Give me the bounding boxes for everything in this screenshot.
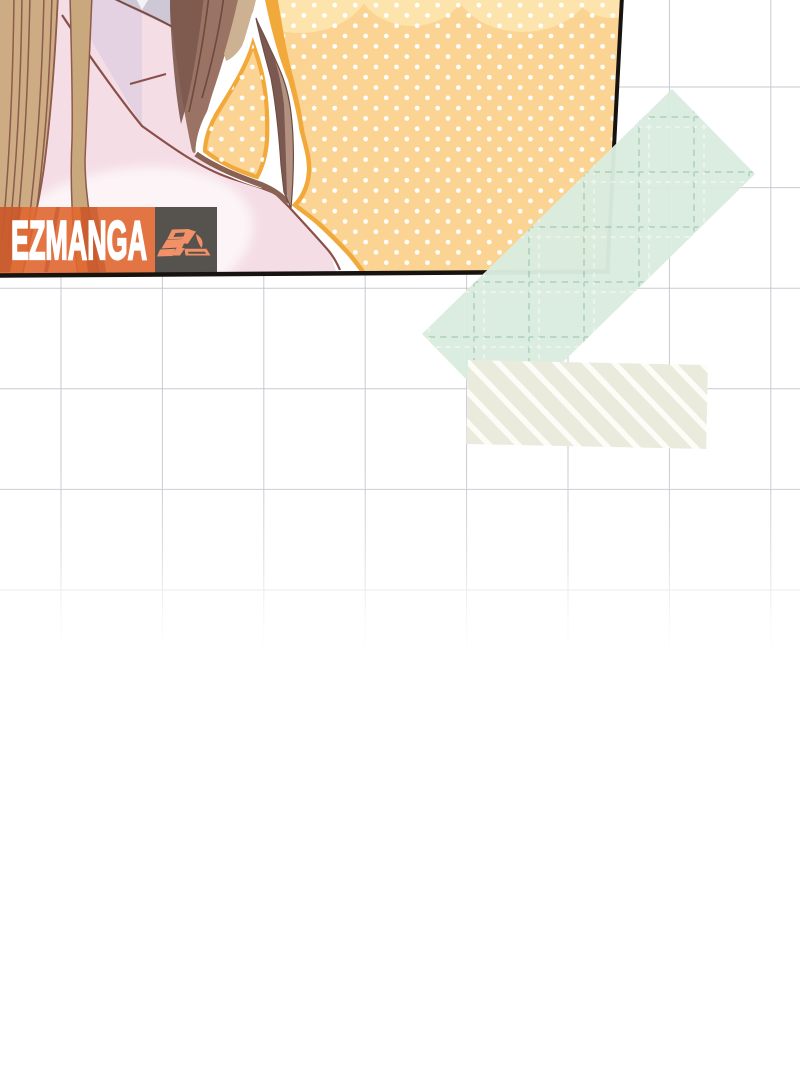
svg-text:EZMANGA: EZMANGA xyxy=(11,209,147,271)
